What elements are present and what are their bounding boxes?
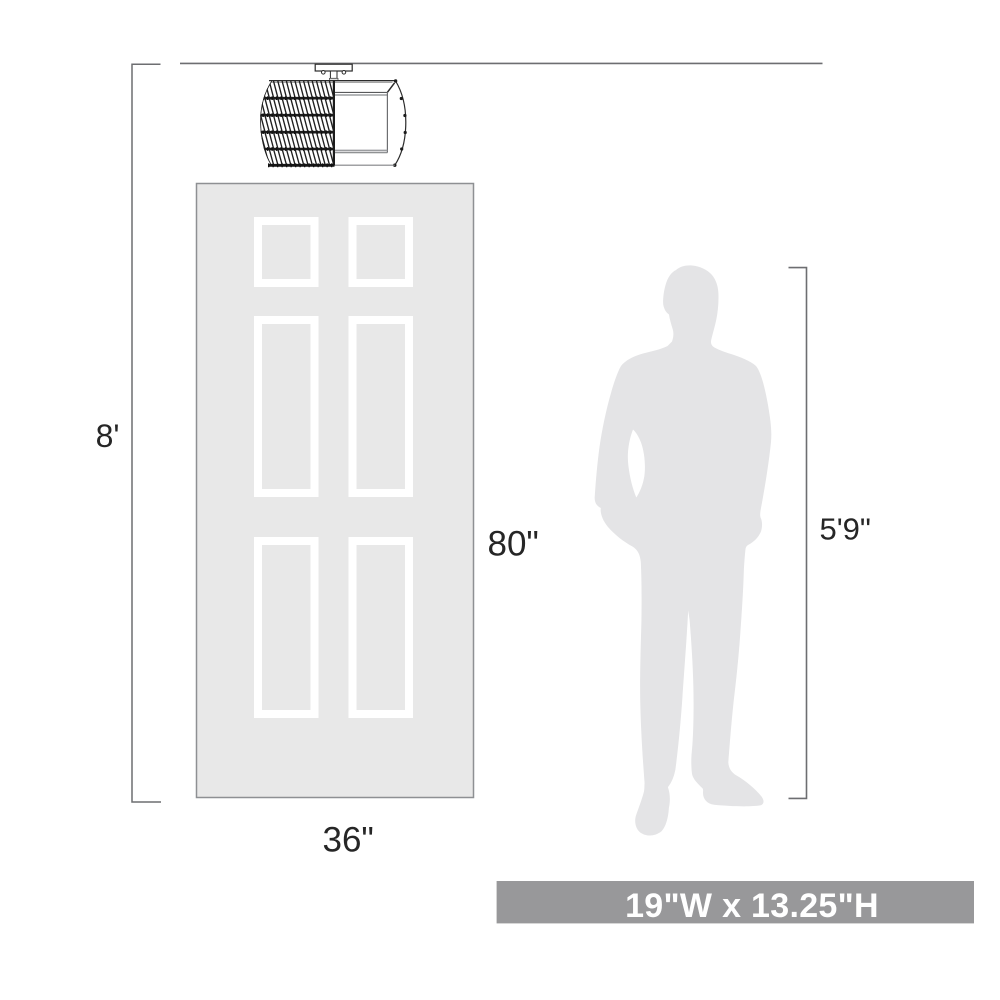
svg-text:36": 36" xyxy=(323,821,374,860)
svg-text:5'9": 5'9" xyxy=(820,512,871,547)
svg-text:19"W x 13.25"H: 19"W x 13.25"H xyxy=(625,887,879,925)
svg-text:8': 8' xyxy=(96,418,120,454)
svg-text:80": 80" xyxy=(488,525,539,564)
